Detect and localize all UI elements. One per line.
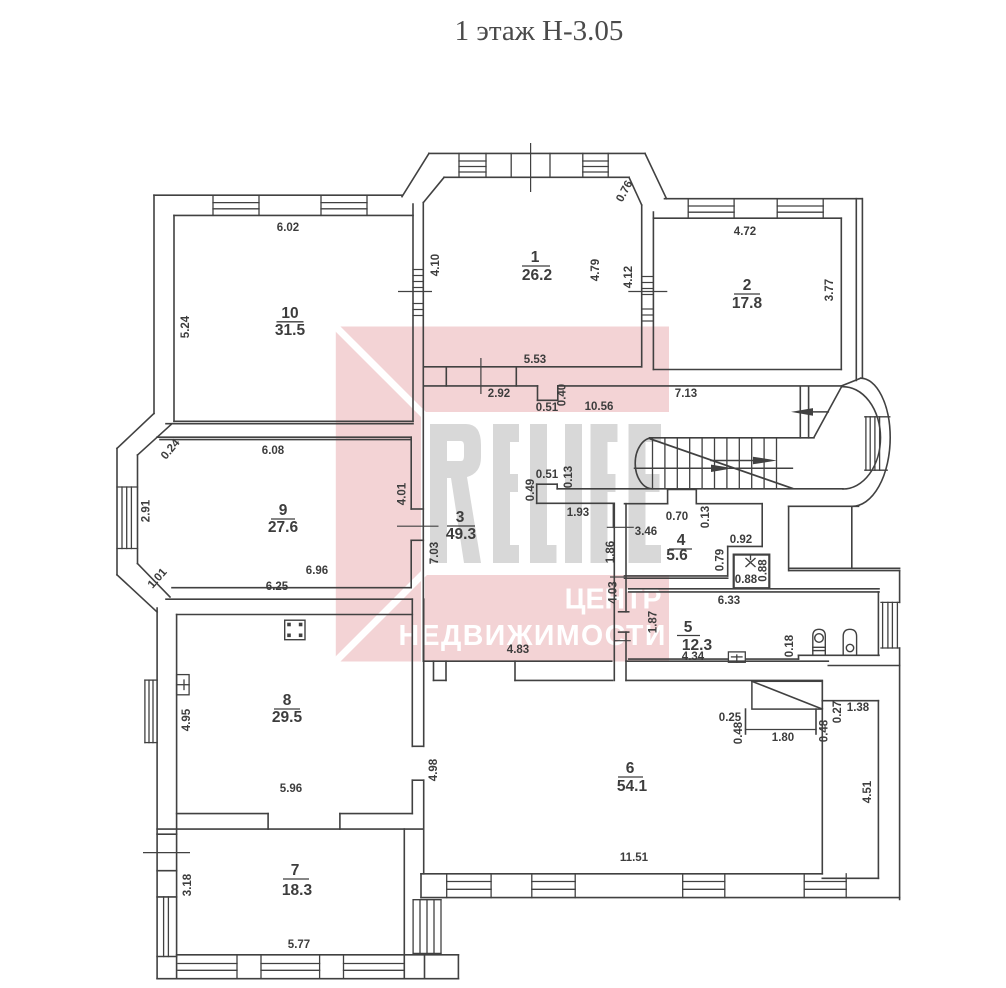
svg-text:1.86: 1.86: [605, 541, 617, 563]
svg-text:11.51: 11.51: [620, 852, 649, 864]
svg-text:0.51: 0.51: [536, 402, 559, 414]
svg-text:0.27: 0.27: [832, 701, 844, 723]
svg-text:0.18: 0.18: [784, 634, 796, 657]
svg-text:5.77: 5.77: [288, 939, 310, 951]
svg-text:4.95: 4.95: [181, 708, 193, 731]
svg-text:2.91: 2.91: [141, 499, 153, 522]
svg-text:5.96: 5.96: [280, 783, 302, 795]
svg-text:10: 10: [281, 305, 298, 322]
svg-text:4.79: 4.79: [590, 259, 602, 281]
svg-text:54.1: 54.1: [617, 778, 648, 795]
svg-text:7: 7: [291, 862, 300, 879]
svg-text:1.93: 1.93: [567, 507, 589, 519]
svg-text:1.38: 1.38: [847, 702, 870, 714]
svg-text:0.48: 0.48: [733, 721, 745, 744]
svg-text:1: 1: [531, 249, 540, 266]
svg-text:4.12: 4.12: [623, 266, 635, 288]
svg-text:4.34: 4.34: [682, 651, 705, 663]
svg-text:4.03: 4.03: [608, 581, 620, 603]
svg-text:31.5: 31.5: [275, 322, 306, 339]
svg-text:4.98: 4.98: [428, 758, 440, 781]
svg-text:0.40: 0.40: [557, 384, 569, 406]
svg-text:6.08: 6.08: [262, 445, 285, 457]
svg-text:1.87: 1.87: [648, 611, 660, 633]
svg-text:0.51: 0.51: [536, 469, 559, 481]
svg-text:3.46: 3.46: [635, 526, 657, 538]
svg-text:4.83: 4.83: [507, 644, 529, 656]
svg-text:0.88: 0.88: [758, 559, 770, 582]
svg-text:8: 8: [283, 692, 292, 709]
svg-text:3.18: 3.18: [182, 873, 194, 896]
svg-text:6.33: 6.33: [718, 595, 740, 607]
svg-text:18.3: 18.3: [282, 882, 313, 899]
svg-text:7.03: 7.03: [429, 542, 441, 564]
svg-text:4.10: 4.10: [430, 254, 442, 276]
svg-text:6.96: 6.96: [306, 565, 328, 577]
svg-text:1.80: 1.80: [772, 732, 794, 744]
svg-text:0.79: 0.79: [715, 549, 727, 571]
svg-text:2: 2: [743, 277, 752, 294]
svg-text:17.8: 17.8: [732, 295, 763, 312]
svg-text:0.88: 0.88: [735, 574, 758, 586]
svg-text:2.92: 2.92: [488, 388, 510, 400]
svg-text:4.72: 4.72: [734, 226, 756, 238]
svg-text:5: 5: [684, 619, 693, 636]
svg-text:0.13: 0.13: [563, 466, 575, 488]
svg-text:0.92: 0.92: [730, 534, 752, 546]
svg-text:4.01: 4.01: [397, 482, 409, 505]
svg-text:5.53: 5.53: [524, 354, 546, 366]
svg-text:10.56: 10.56: [585, 401, 614, 413]
svg-text:27.6: 27.6: [268, 519, 299, 536]
svg-text:3.77: 3.77: [824, 279, 836, 301]
svg-text:9: 9: [279, 502, 288, 519]
svg-text:6: 6: [626, 760, 635, 777]
svg-text:0.70: 0.70: [666, 511, 688, 523]
svg-text:6.25: 6.25: [266, 581, 289, 593]
svg-text:0.49: 0.49: [525, 479, 537, 501]
svg-text:7.13: 7.13: [675, 388, 697, 400]
svg-text:5.24: 5.24: [180, 315, 192, 338]
svg-text:0.48: 0.48: [819, 719, 831, 742]
svg-text:26.2: 26.2: [522, 267, 552, 284]
svg-text:3: 3: [456, 509, 465, 526]
svg-text:0.13: 0.13: [700, 506, 712, 528]
svg-text:29.5: 29.5: [272, 709, 303, 726]
svg-text:6.02: 6.02: [277, 222, 299, 234]
svg-text:1 этаж Н-3.05: 1 этаж Н-3.05: [455, 15, 624, 47]
svg-text:4.51: 4.51: [862, 780, 874, 803]
svg-text:49.3: 49.3: [446, 526, 477, 543]
